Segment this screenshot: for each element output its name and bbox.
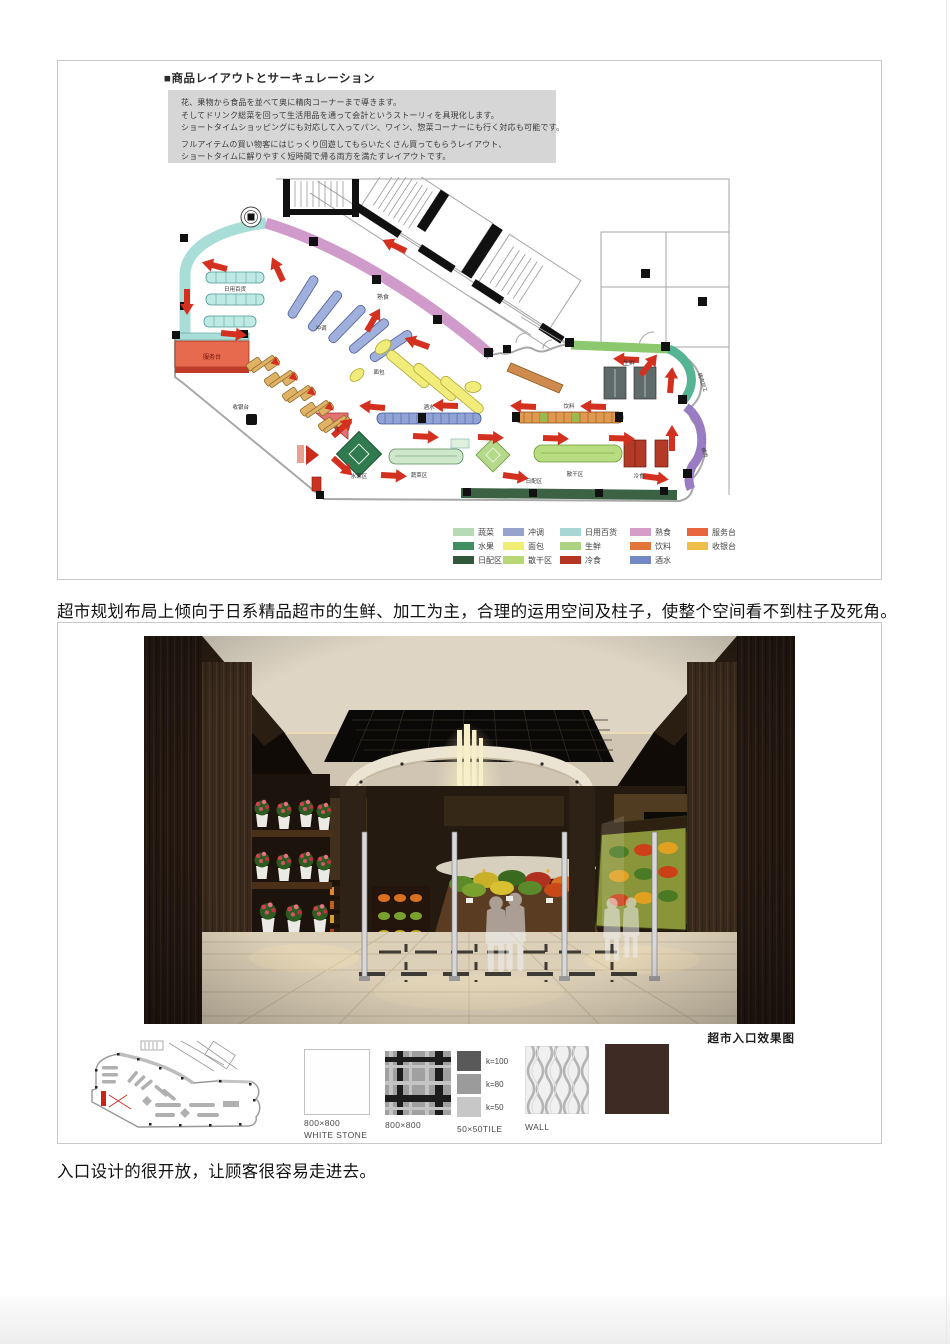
document-page: { "panel1": { "title": "■商品レイアウトとサーキュレーシ…	[0, 0, 950, 1344]
plan-label: 生鲜	[623, 359, 635, 367]
plan-label: 花	[334, 426, 339, 433]
legend-label: 酒水	[655, 555, 671, 566]
legend-swatch	[630, 556, 651, 564]
legend-label: 收银台	[712, 541, 736, 552]
page-bottom-gap	[0, 1296, 950, 1344]
entrance-rendering: DRINKS FRU	[144, 636, 795, 1024]
description-line: 花、果物から食品を並べて奥に精肉コーナーまで導きます。	[181, 97, 556, 110]
plan-label: 服务台	[203, 353, 221, 361]
legend-item: 冷食	[560, 555, 630, 566]
plan-label: 冲调	[315, 324, 327, 332]
legend-label: 蔬菜	[478, 527, 494, 538]
ktile-row: k=50	[457, 1097, 508, 1117]
description-line: ショートタイムショッピングにも対応して入ってパン、ワイン、惣菜コーナーにも行く対…	[181, 122, 556, 135]
legend-label: 日用百货	[585, 527, 617, 538]
plan-label: 水果区	[351, 472, 368, 480]
rendering-panel: DRINKS FRU	[57, 622, 882, 1144]
wall-texture-sample	[525, 1046, 589, 1114]
plan-label: 冷食	[633, 472, 645, 480]
legend-item: 水果	[453, 541, 503, 552]
plan-label: 饮料	[563, 402, 575, 410]
legend-swatch	[630, 542, 651, 550]
legend-swatch	[453, 556, 474, 564]
legend-label: 饮料	[655, 541, 671, 552]
plaid-tile-sample	[385, 1051, 451, 1115]
ktile-swatch	[457, 1097, 481, 1117]
legend-swatch	[503, 542, 524, 550]
legend-label: 面包	[528, 541, 544, 552]
description-line: フルアイテムの買い物客にはじっくり回遊してもらいたくさん買ってもらうレイアウト、	[181, 139, 556, 152]
description-line: そしてドリンク総菜を回って生活用品を通って会計というストーリィを具現化します。	[181, 110, 556, 123]
plaid-tile-size: 800×800	[385, 1119, 421, 1131]
wall-label: WALL	[525, 1121, 549, 1133]
legend-label: 生鲜	[585, 541, 601, 552]
legend-swatch	[453, 542, 474, 550]
floor-plan: 日用百货 熟食 冲调 面包 酒水 饮料 生鲜 精肉加工 精肉 服务台 收银台 花…	[171, 177, 736, 524]
white-stone-name: WHITE STONE	[304, 1129, 367, 1141]
body-paragraph: 超市规划布局上倾向于日系精品超市的生鲜、加工为主，合理的运用空间及柱子，使整个空…	[57, 598, 902, 622]
ktile-label: k=100	[486, 1057, 508, 1066]
legend-item: 蔬菜	[453, 527, 503, 538]
legend-label: 水果	[478, 541, 494, 552]
legend-item: 冲调	[503, 527, 560, 538]
legend-swatch	[503, 556, 524, 564]
mini-floor-plan	[89, 1039, 267, 1131]
legend-item: 日配区	[453, 555, 503, 566]
legend-label: 冲调	[528, 527, 544, 538]
legend-swatch	[687, 528, 708, 536]
page-edge-line	[946, 0, 947, 1344]
legend-row: 水果面包生鲜饮料收银台	[453, 539, 749, 553]
tile-k-samples: k=100k=80k=50	[457, 1051, 508, 1120]
legend-row: 蔬菜冲调日用百货熟食服务台	[453, 525, 749, 539]
legend-label: 日配区	[478, 555, 502, 566]
legend-swatch	[630, 528, 651, 536]
tile-k-caption: 50×50TILE	[457, 1123, 502, 1135]
ktile-swatch	[457, 1051, 481, 1071]
plan-label: 蔬菜区	[411, 471, 428, 479]
legend-label: 散干区	[528, 555, 552, 566]
plan-label: 日配区	[526, 478, 543, 485]
panel-title: ■商品レイアウトとサーキュレーション	[164, 70, 375, 86]
ktile-label: k=50	[486, 1103, 504, 1112]
legend-label: 服务台	[712, 527, 736, 538]
legend-item: 日用百货	[560, 527, 630, 538]
white-stone-size: 800×800	[304, 1117, 340, 1129]
legend-item: 生鲜	[560, 541, 630, 552]
plan-legend: 蔬菜冲调日用百货熟食服务台水果面包生鲜饮料收银台日配区散干区冷食酒水	[453, 525, 749, 567]
legend-swatch	[503, 528, 524, 536]
ktile-swatch	[457, 1074, 481, 1094]
legend-label: 熟食	[655, 527, 671, 538]
description-line: ショートタイムに解りやすく短時間で帰る両方を満たすレイアウトです。	[181, 151, 556, 164]
legend-swatch	[453, 528, 474, 536]
legend-swatch	[560, 556, 581, 564]
legend-item: 散干区	[503, 555, 560, 566]
plan-label: 散干区	[567, 470, 584, 478]
plan-label: 日用百货	[224, 285, 247, 293]
legend-item: 收银台	[687, 541, 749, 552]
legend-item: 酒水	[630, 555, 687, 566]
ktile-row: k=80	[457, 1074, 508, 1094]
brown-wood-sample	[605, 1044, 669, 1114]
ktile-row: k=100	[457, 1051, 508, 1071]
plan-label: 收银台	[232, 403, 249, 411]
legend-item: 熟食	[630, 527, 687, 538]
legend-item: 面包	[503, 541, 560, 552]
ktile-label: k=80	[486, 1080, 504, 1089]
legend-item: 饮料	[630, 541, 687, 552]
description-box: 花、果物から食品を並べて奥に精肉コーナーまで導きます。 そしてドリンク総菜を回っ…	[168, 90, 556, 163]
legend-swatch	[560, 528, 581, 536]
legend-swatch	[687, 542, 708, 550]
legend-item: 服务台	[687, 527, 749, 538]
plan-label: 酒水	[423, 403, 435, 411]
legend-row: 日配区散干区冷食酒水	[453, 553, 749, 567]
white-stone-sample	[304, 1049, 370, 1115]
body-paragraph: 入口设计的很开放，让顾客很容易走进去。	[57, 1158, 902, 1182]
legend-swatch	[560, 542, 581, 550]
floorplan-panel: ■商品レイアウトとサーキュレーション 花、果物から食品を並べて奥に精肉コーナーま…	[57, 60, 882, 580]
plan-label: 熟食	[377, 293, 389, 301]
plan-label: 面包	[373, 368, 385, 376]
entrance-marker	[101, 1091, 106, 1106]
legend-label: 冷食	[585, 555, 601, 566]
